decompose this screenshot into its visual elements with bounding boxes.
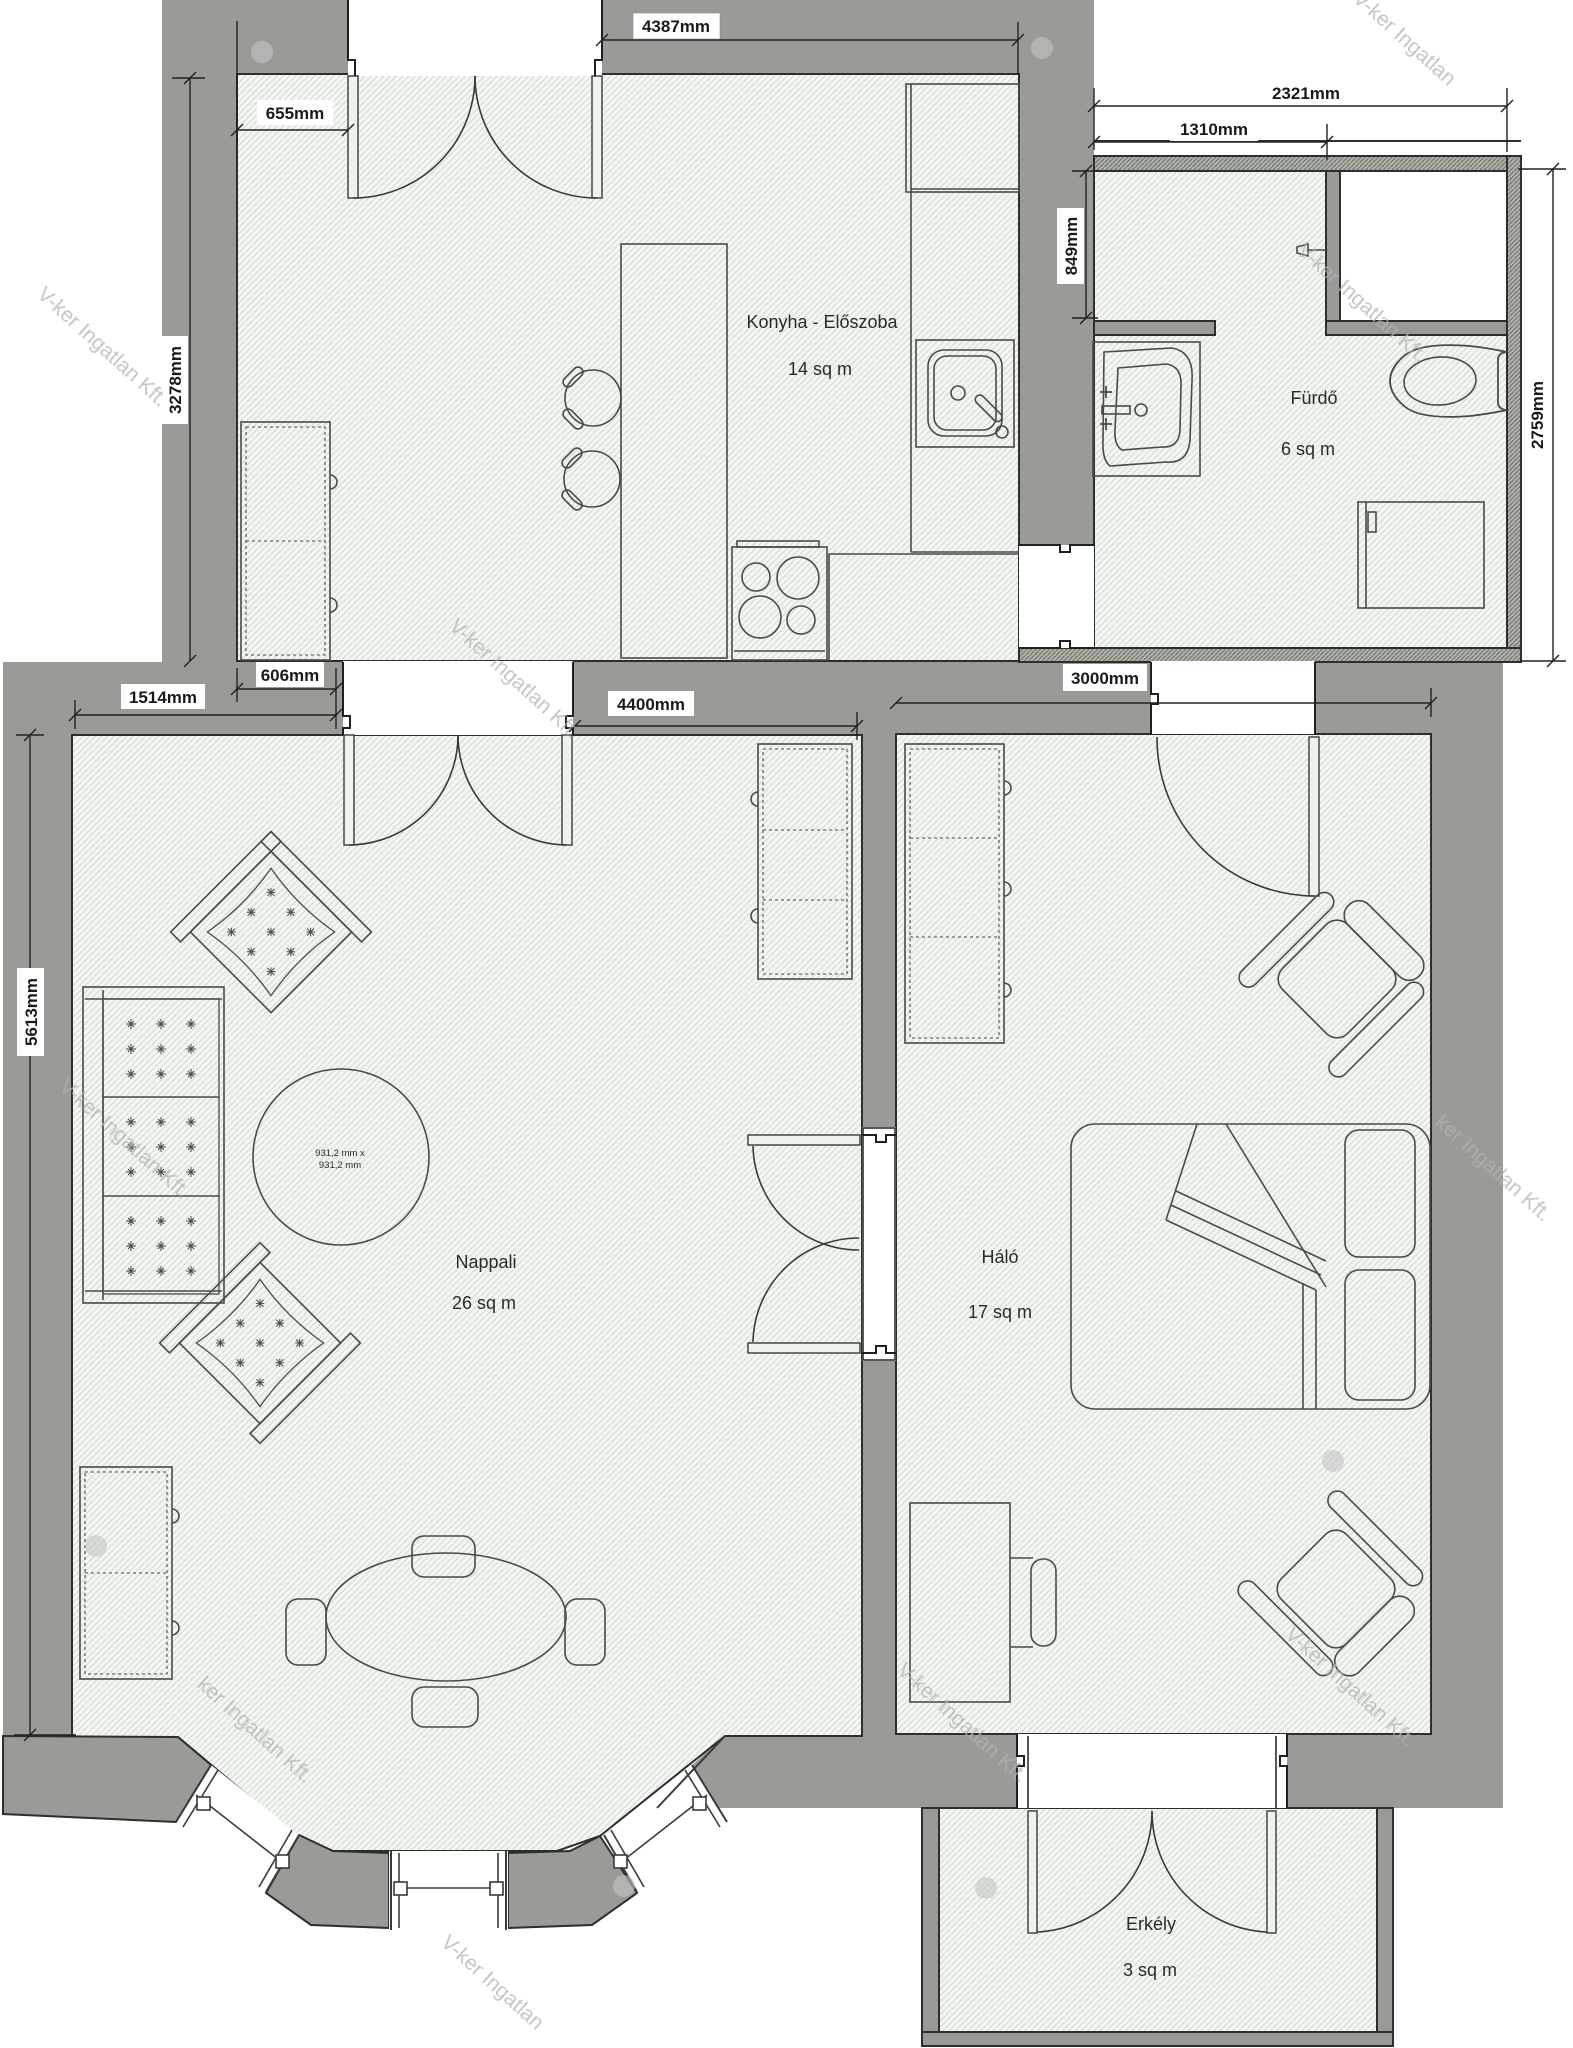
svg-text:1310mm: 1310mm bbox=[1180, 120, 1248, 139]
svg-text:26 sq m: 26 sq m bbox=[452, 1293, 516, 1313]
svg-text:849mm: 849mm bbox=[1062, 217, 1081, 276]
svg-text:V-ker Ingatlan Kft.: V-ker Ingatlan Kft. bbox=[33, 283, 172, 412]
svg-text:3278mm: 3278mm bbox=[166, 346, 185, 414]
svg-text:17 sq m: 17 sq m bbox=[968, 1302, 1032, 1322]
svg-text:V-ker Ingatlan: V-ker Ingatlan bbox=[1349, 0, 1461, 90]
svg-text:2321mm: 2321mm bbox=[1272, 84, 1340, 103]
svg-text:4387mm: 4387mm bbox=[642, 17, 710, 36]
svg-text:655mm: 655mm bbox=[266, 104, 325, 123]
svg-text:14 sq m: 14 sq m bbox=[788, 359, 852, 379]
svg-text:2759mm: 2759mm bbox=[1528, 381, 1547, 449]
svg-text:606mm: 606mm bbox=[261, 666, 320, 685]
svg-text:Fürdő: Fürdő bbox=[1290, 388, 1337, 408]
svg-text:Háló: Háló bbox=[981, 1247, 1018, 1267]
svg-text:6 sq m: 6 sq m bbox=[1281, 439, 1335, 459]
svg-text:5613mm: 5613mm bbox=[22, 978, 41, 1046]
svg-text:3000mm: 3000mm bbox=[1071, 669, 1139, 688]
svg-text:Nappali: Nappali bbox=[455, 1252, 516, 1272]
svg-text:3 sq m: 3 sq m bbox=[1123, 1960, 1177, 1980]
svg-text:1514mm: 1514mm bbox=[129, 688, 197, 707]
svg-text:Erkély: Erkély bbox=[1126, 1914, 1176, 1934]
svg-text:931,2 mm x: 931,2 mm x bbox=[315, 1148, 365, 1159]
svg-text:4400mm: 4400mm bbox=[617, 695, 685, 714]
svg-text:Konyha - Előszoba: Konyha - Előszoba bbox=[746, 312, 898, 332]
svg-text:931,2 mm: 931,2 mm bbox=[319, 1160, 361, 1171]
svg-text:V-ker Ingatlan: V-ker Ingatlan bbox=[437, 1931, 549, 2035]
